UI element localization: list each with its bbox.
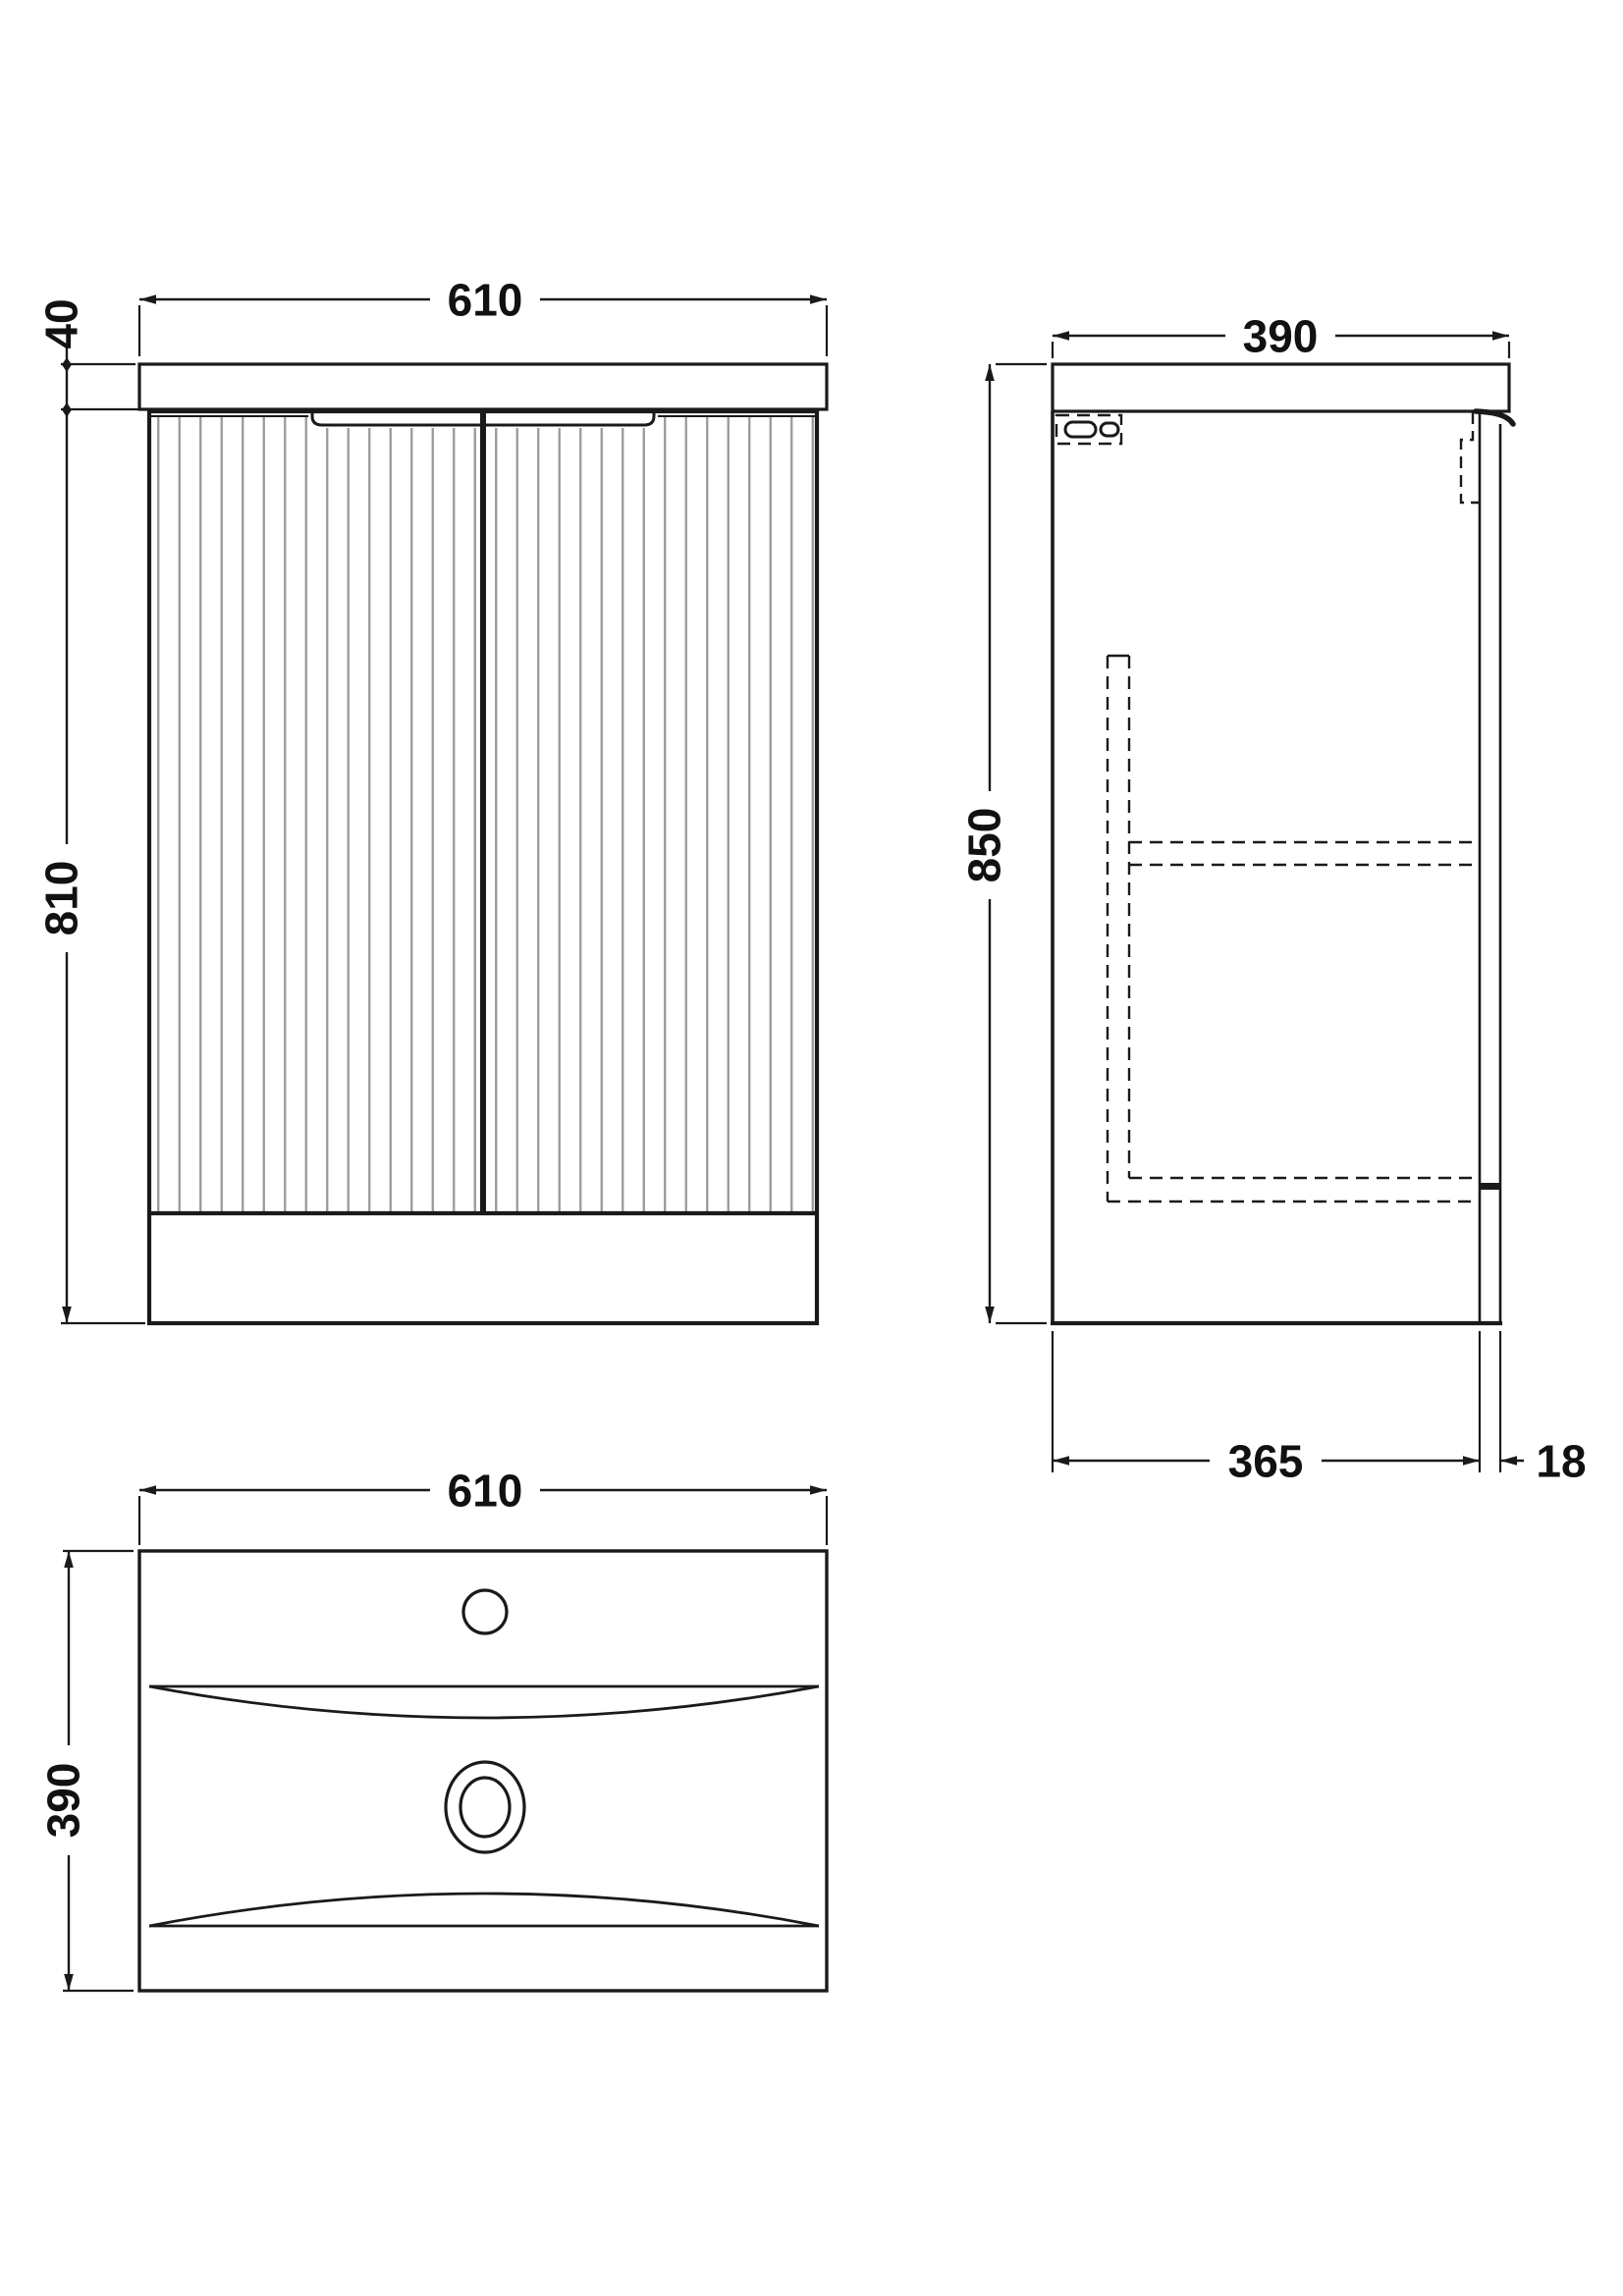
door-hidden-outline	[1108, 656, 1129, 1201]
side-base-dimensions: 365 18	[1053, 1331, 1587, 1487]
arrowhead	[64, 1551, 74, 1568]
shelf-hidden-outline	[1129, 842, 1480, 865]
plan-depth-label: 390	[38, 1763, 89, 1839]
drain	[446, 1762, 524, 1852]
side-base-depth-label: 365	[1228, 1436, 1304, 1487]
door-centre-divider	[480, 411, 486, 1213]
plan-width-dimension: 610	[139, 1466, 827, 1545]
drawing-sheet: 610 40 810	[0, 0, 1623, 2296]
hinge-slot-large	[1065, 422, 1096, 437]
front-cabinet-height-label: 810	[36, 861, 87, 936]
arrowhead	[985, 1307, 995, 1323]
tap-hole	[463, 1590, 507, 1633]
front-width-dimension: 610	[139, 275, 827, 356]
side-height-label: 850	[959, 808, 1010, 883]
arrowhead	[139, 294, 156, 304]
arrowhead	[985, 364, 995, 381]
right-door-flutes-under-recess	[486, 428, 655, 1213]
drain-inner-ring	[460, 1778, 510, 1837]
plan-view: 610 390	[38, 1466, 827, 1991]
plan-width-label: 610	[448, 1466, 523, 1517]
side-height-dimension: 850	[959, 364, 1047, 1323]
left-door-flutes-under-recess	[312, 428, 480, 1213]
arrowhead	[1463, 1456, 1480, 1466]
arrowhead	[810, 1485, 827, 1495]
arrowhead	[1492, 331, 1509, 341]
hinge-plate-hidden-detail	[1056, 415, 1121, 444]
arrowhead	[1053, 1456, 1069, 1466]
hinge-slot-small	[1101, 423, 1118, 436]
front-width-label: 610	[448, 275, 523, 326]
arrowhead	[1053, 331, 1069, 341]
side-worktop	[1053, 364, 1509, 411]
arrowhead	[810, 294, 827, 304]
front-view: 610 40 810	[36, 275, 827, 1323]
plan-depth-dimension: 390	[38, 1551, 134, 1991]
arrowhead	[1500, 1456, 1517, 1466]
side-panel-thickness-label: 18	[1536, 1436, 1586, 1487]
front-worktop	[139, 364, 827, 409]
side-depth-dimension: 390	[1053, 311, 1509, 362]
tick-mark	[62, 357, 72, 372]
floor-back-tick	[1480, 1183, 1500, 1190]
vanity-technical-drawing: 610 40 810	[0, 0, 1623, 2296]
back-rail-hidden-detail	[1461, 412, 1480, 503]
side-view: 390 850 365 18	[959, 311, 1587, 1487]
right-door-flutes-outer	[655, 417, 818, 1213]
worktop-back-lip	[1476, 411, 1513, 424]
arrowhead	[64, 1974, 74, 1991]
tick-mark	[62, 402, 72, 417]
front-worktop-height-label: 40	[36, 298, 87, 348]
front-height-dimensions: 40 810	[36, 298, 145, 1323]
arrowhead	[62, 1307, 72, 1323]
floor-hidden-outline	[1108, 1178, 1500, 1201]
left-door-flutes-outer	[151, 417, 311, 1213]
side-depth-label: 390	[1243, 311, 1319, 362]
arrowhead	[139, 1485, 156, 1495]
